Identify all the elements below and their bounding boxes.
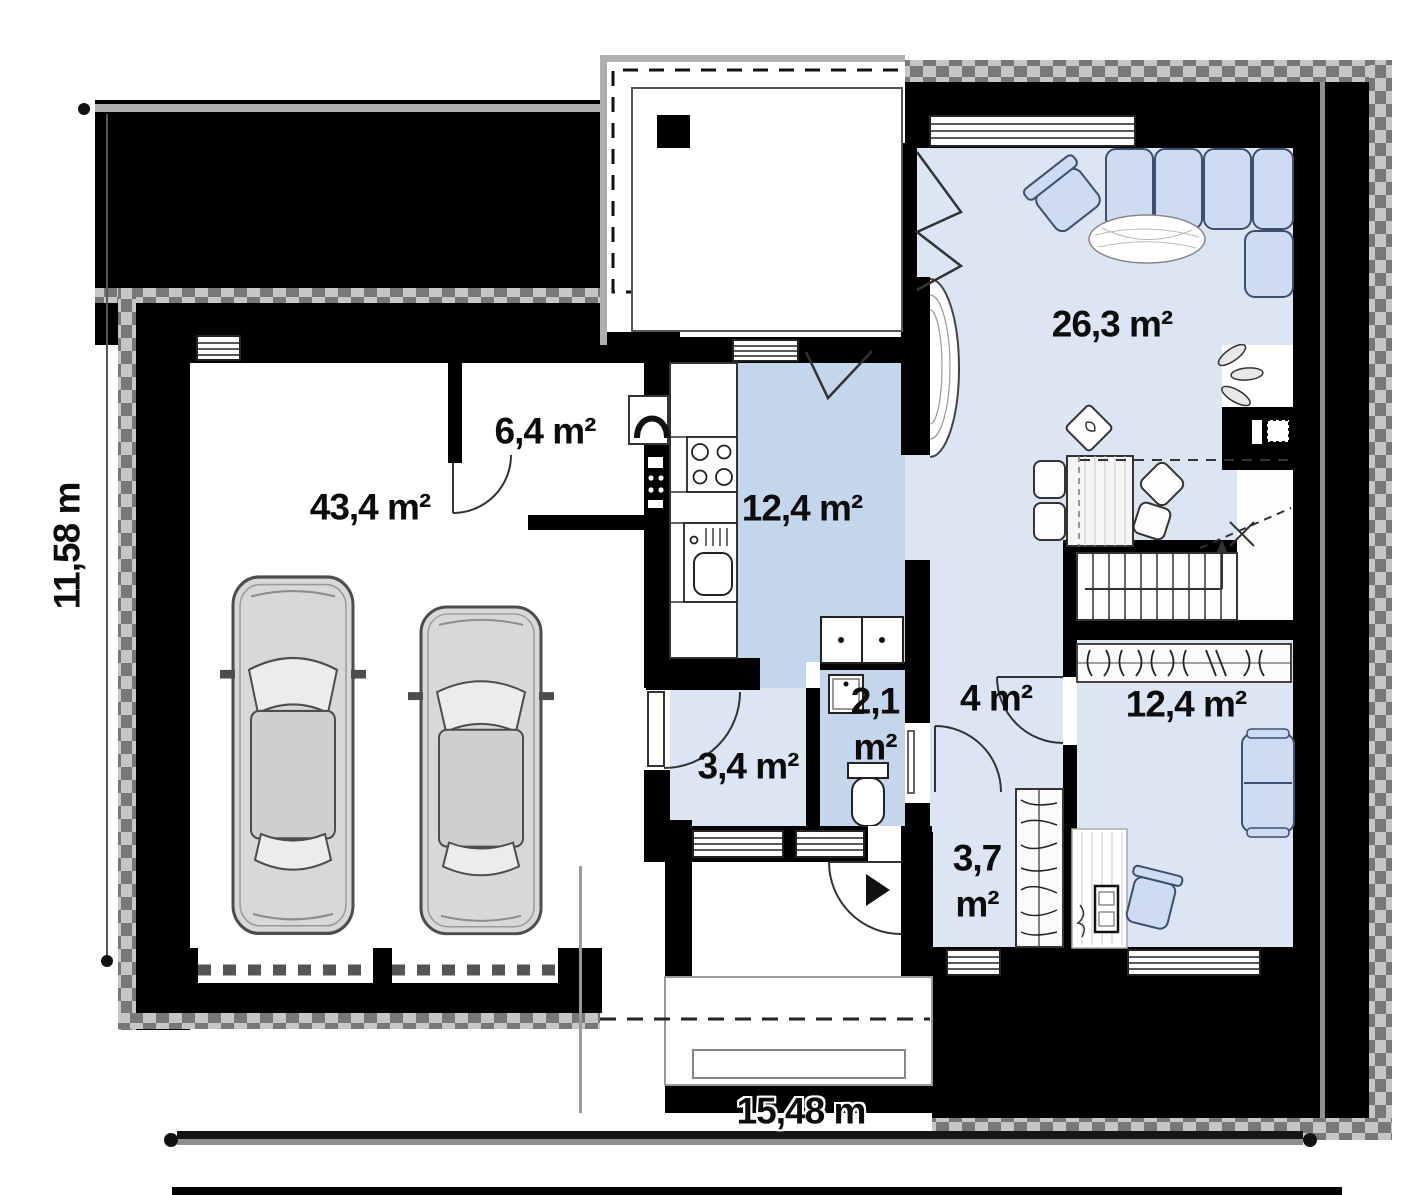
porch-dashed-outline xyxy=(613,70,898,292)
window-bedroom xyxy=(1128,950,1260,975)
wardrobe-rail-icon xyxy=(1077,644,1291,682)
bed-sofa-icon xyxy=(1242,729,1294,837)
window-kitchen xyxy=(733,340,798,361)
window-pantry xyxy=(947,950,1000,975)
oven-icon xyxy=(644,450,668,516)
floor-plan-drawing xyxy=(0,0,1403,1195)
stove-icon xyxy=(687,437,737,492)
dining-table-icon xyxy=(1067,456,1133,546)
wc-sliding-door xyxy=(905,723,930,803)
room-label-garage-hall: 3,4 m² xyxy=(698,748,799,785)
chimney xyxy=(657,115,690,148)
room-label-wc-value: 2,1 xyxy=(851,683,899,720)
porch-step xyxy=(693,1050,905,1078)
room-label-garage: 43,4 m² xyxy=(310,489,431,526)
room-label-pantry-value: 3,7 xyxy=(953,840,1001,877)
fireplace-detail xyxy=(1252,420,1289,444)
room-label-kitchen: 12,4 m² xyxy=(742,490,863,527)
sink-icon xyxy=(684,523,737,602)
room-label-bedroom: 12,4 m² xyxy=(1126,686,1247,723)
entry-porch-top xyxy=(613,70,902,331)
window-living xyxy=(930,116,1135,146)
window-hall-1 xyxy=(693,831,783,857)
boiler-icon xyxy=(629,396,668,444)
washer-icons xyxy=(821,617,903,663)
door-storage xyxy=(453,455,511,513)
floor-plan: 43,4 m² 6,4 m² 12,4 m² 26,3 m² 3,4 m² 2,… xyxy=(0,0,1403,1195)
room-label-living-room: 26,3 m² xyxy=(1052,306,1173,343)
room-label-storage: 6,4 m² xyxy=(495,413,596,450)
dimension-line-bottom xyxy=(164,1131,1317,1147)
rug-icon xyxy=(1089,215,1205,263)
entry-porch-bottom xyxy=(600,862,932,1085)
room-label-hall: 4 m² xyxy=(960,680,1032,717)
dimension-height-label: 11,58 m xyxy=(49,483,86,610)
desk-icon xyxy=(1072,829,1127,948)
toilet-icon xyxy=(848,763,888,826)
dimension-width-label: 15,48 m xyxy=(737,1093,866,1130)
car-2-icon xyxy=(408,607,554,934)
room-label-pantry-unit: m² xyxy=(955,886,998,923)
sliding-wardrobe-icon xyxy=(1016,789,1063,947)
window-hall-2 xyxy=(796,831,864,857)
window-garage xyxy=(197,336,240,360)
room-label-wc-unit: m² xyxy=(853,729,896,766)
car-1-icon xyxy=(220,577,366,933)
